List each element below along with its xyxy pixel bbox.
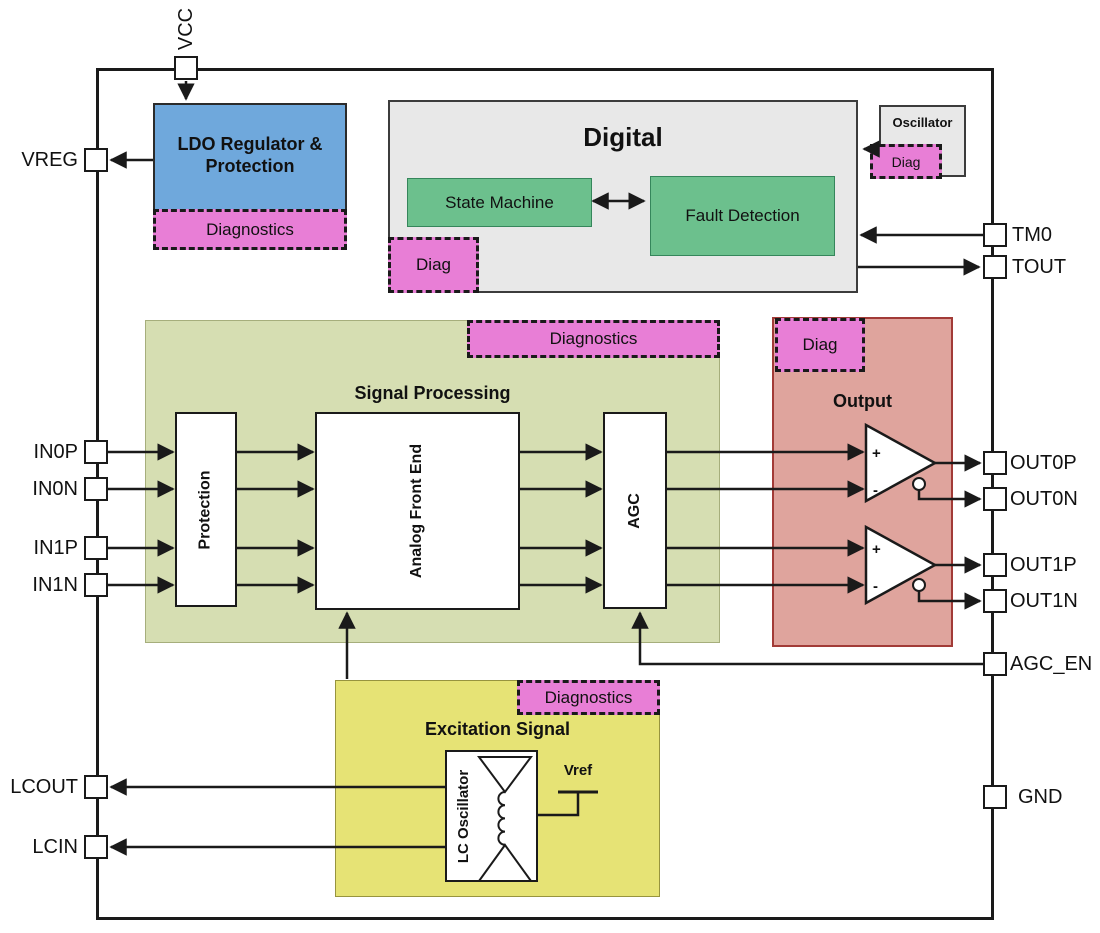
state-machine-label: State Machine	[445, 193, 554, 213]
agc-block: AGC	[603, 412, 667, 609]
pin-label-out0n: OUT0N	[1010, 487, 1078, 511]
state-machine-block: State Machine	[407, 178, 592, 227]
output-diag-label: Diag	[803, 335, 838, 355]
signal-processing-diagnostics-box: Diagnostics	[467, 320, 720, 358]
pin-label-tout: TOUT	[1012, 255, 1066, 279]
pin-label-agc-en: AGC_EN	[1010, 652, 1092, 676]
pin-label-out0p: OUT0P	[1010, 451, 1077, 475]
excitation-signal-title: Excitation Signal	[336, 719, 659, 740]
ldo-regulator-block: LDO Regulator & Protection	[153, 103, 347, 211]
pin-out0n	[983, 487, 1007, 511]
pin-tm0	[983, 223, 1007, 247]
pin-in0n	[84, 477, 108, 501]
pin-label-gnd: GND	[1018, 785, 1062, 809]
agc-label: AGC	[626, 493, 644, 529]
pin-label-out1n: OUT1N	[1010, 589, 1078, 613]
pin-tout	[983, 255, 1007, 279]
protection-label: Protection	[197, 470, 215, 549]
ldo-diagnostics-box: Diagnostics	[153, 209, 347, 250]
fault-detection-label: Fault Detection	[685, 206, 799, 226]
digital-diag-label: Diag	[416, 255, 451, 275]
pin-label-in1p: IN1P	[8, 536, 78, 560]
pin-lcin	[84, 835, 108, 859]
digital-diag-box: Diag	[388, 237, 479, 293]
pin-vreg	[84, 148, 108, 172]
excitation-diagnostics-label: Diagnostics	[545, 688, 633, 708]
pin-agc-en	[983, 652, 1007, 676]
oscillator-diag-label: Diag	[892, 154, 921, 170]
protection-block: Protection	[175, 412, 237, 607]
pin-vcc	[174, 56, 198, 80]
pin-label-vreg: VREG	[8, 148, 78, 172]
pin-label-vcc: VCC	[166, 4, 206, 54]
digital-title: Digital	[390, 102, 856, 153]
pin-gnd	[983, 785, 1007, 809]
fault-detection-block: Fault Detection	[650, 176, 835, 256]
pin-label-out1p: OUT1P	[1010, 553, 1077, 577]
pin-out1p	[983, 553, 1007, 577]
oscillator-diag-box: Diag	[870, 144, 942, 179]
pin-out0p	[983, 451, 1007, 475]
pin-lcout	[84, 775, 108, 799]
vref-label: Vref	[548, 762, 608, 779]
lc-oscillator-label-area: LC Oscillator	[447, 752, 481, 880]
ldo-title: LDO Regulator & Protection	[165, 133, 335, 177]
excitation-diagnostics-box: Diagnostics	[517, 680, 660, 715]
pin-in1n	[84, 573, 108, 597]
signal-processing-diagnostics-label: Diagnostics	[550, 329, 638, 349]
ldo-diagnostics-label: Diagnostics	[206, 220, 294, 240]
output-diag-box: Diag	[775, 318, 865, 372]
pin-out1n	[983, 589, 1007, 613]
signal-processing-title: Signal Processing	[146, 383, 719, 404]
pin-label-tm0: TM0	[1012, 223, 1052, 247]
pin-label-in1n: IN1N	[8, 573, 78, 597]
output-title: Output	[774, 391, 951, 412]
pin-in0p	[84, 440, 108, 464]
pin-in1p	[84, 536, 108, 560]
lc-oscillator-label: LC Oscillator	[456, 769, 473, 862]
analog-front-end-block: Analog Front End	[315, 412, 520, 610]
pin-label-lcin: LCIN	[8, 835, 78, 859]
pin-label-in0p: IN0P	[8, 440, 78, 464]
analog-front-end-label: Analog Front End	[408, 444, 426, 578]
pin-label-lcout: LCOUT	[8, 775, 78, 799]
oscillator-title: Oscillator	[881, 107, 964, 130]
pin-label-in0n: IN0N	[8, 477, 78, 501]
block-diagram: LDO Regulator & Protection Diagnostics D…	[0, 0, 1100, 933]
